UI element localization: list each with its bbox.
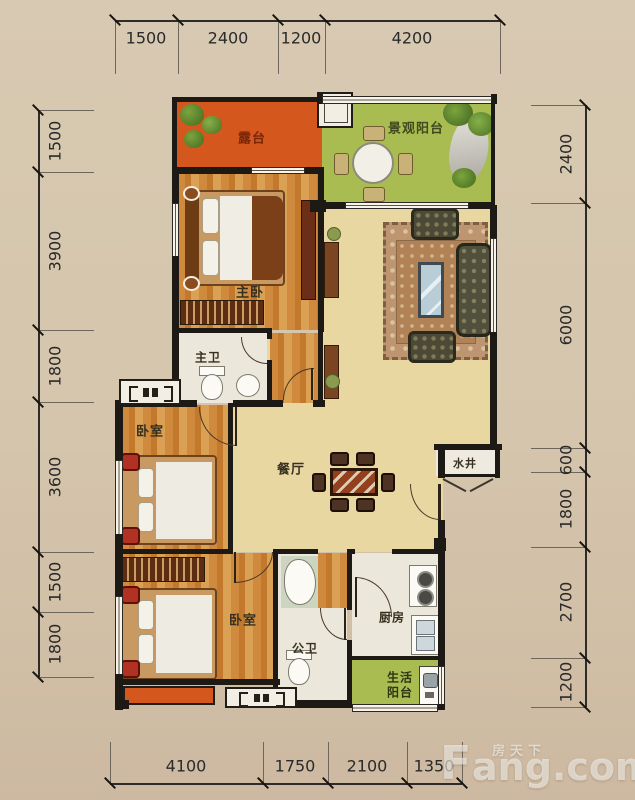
wall bbox=[115, 400, 123, 462]
wall bbox=[273, 549, 318, 554]
extension-line bbox=[40, 402, 94, 403]
pillow-icon bbox=[138, 600, 154, 630]
bracket-glyph bbox=[129, 386, 138, 402]
wall bbox=[172, 97, 322, 102]
extension-line bbox=[40, 552, 94, 553]
dimension-line-top bbox=[115, 20, 501, 22]
washer-drum bbox=[423, 673, 438, 688]
room-label-bedroom-bottom: 卧室 bbox=[229, 610, 257, 629]
chair-icon bbox=[330, 452, 349, 466]
wall bbox=[172, 97, 177, 172]
door-leaf bbox=[235, 407, 237, 446]
room-label-bedroom-mid: 卧室 bbox=[136, 421, 164, 440]
dim-label-left: 1800 bbox=[46, 346, 65, 387]
chair-icon bbox=[363, 126, 385, 141]
plant-icon bbox=[452, 168, 476, 188]
stove-icon bbox=[409, 565, 437, 607]
wall bbox=[440, 474, 498, 477]
pane-glyph bbox=[143, 388, 149, 397]
hall-cabinet bbox=[324, 242, 339, 298]
dim-label-right: 600 bbox=[557, 445, 576, 476]
room-label-public-bath: 公卫 bbox=[292, 640, 318, 657]
pillow-icon bbox=[202, 198, 219, 234]
entry-door-leaf bbox=[438, 484, 441, 520]
dim-label-left: 1800 bbox=[46, 624, 65, 665]
window bbox=[172, 203, 179, 258]
chair-icon bbox=[356, 452, 375, 466]
bathtub-icon bbox=[284, 559, 316, 605]
tv-cabinet bbox=[301, 200, 316, 300]
well-door-swing bbox=[470, 478, 494, 492]
dim-label-bottom: 4100 bbox=[166, 757, 207, 776]
bedpost-icon bbox=[121, 453, 140, 471]
toilet-icon bbox=[288, 658, 310, 685]
wall bbox=[273, 549, 278, 708]
dim-label-right: 1200 bbox=[557, 662, 576, 703]
armchair-icon bbox=[408, 331, 456, 363]
wall bbox=[490, 205, 497, 240]
extension-line bbox=[531, 547, 585, 548]
pane-glyph bbox=[152, 388, 158, 397]
room-label-kitchen: 厨房 bbox=[379, 609, 405, 626]
window bbox=[115, 596, 123, 676]
wardrobe-icon bbox=[180, 300, 264, 325]
room-label-life-balcony-line2: 阳台 bbox=[387, 684, 413, 701]
sofa-icon bbox=[456, 243, 492, 337]
bedpost-icon bbox=[121, 586, 140, 604]
bracket-glyph bbox=[239, 692, 248, 707]
extension-line bbox=[407, 742, 408, 783]
wall bbox=[352, 656, 440, 660]
chair-icon bbox=[334, 153, 349, 175]
window bbox=[352, 704, 438, 712]
bracket-glyph bbox=[276, 692, 285, 707]
bedpost-icon bbox=[121, 660, 140, 678]
hall-cabinet bbox=[324, 345, 339, 399]
wall bbox=[347, 640, 352, 708]
ac-platform-icon bbox=[119, 379, 181, 405]
wall bbox=[495, 448, 500, 478]
dim-label-bottom: 2100 bbox=[347, 757, 388, 776]
column bbox=[115, 700, 129, 709]
dim-label-left: 3900 bbox=[46, 231, 65, 272]
window bbox=[251, 167, 305, 174]
door-leaf bbox=[344, 608, 346, 640]
bedpost-icon bbox=[121, 527, 140, 545]
room-label-master-bath: 主卫 bbox=[195, 349, 221, 366]
dimension-line-left bbox=[38, 110, 40, 677]
extension-line bbox=[500, 22, 501, 74]
wall bbox=[318, 330, 323, 405]
bracket-glyph bbox=[164, 386, 173, 402]
extension-line bbox=[40, 110, 94, 111]
door-leaf bbox=[355, 577, 357, 617]
wall bbox=[347, 549, 352, 610]
extension-line bbox=[40, 612, 94, 613]
sink-basin bbox=[416, 636, 435, 651]
wall bbox=[491, 101, 495, 205]
wall bbox=[490, 332, 497, 450]
extension-line bbox=[178, 22, 179, 74]
pillow-icon bbox=[202, 240, 219, 276]
column bbox=[434, 538, 446, 551]
bath-vestibule-floor bbox=[318, 553, 347, 608]
window bbox=[115, 460, 123, 536]
chair-icon bbox=[330, 498, 349, 512]
dim-label-top: 2400 bbox=[208, 29, 249, 48]
watermark-cn: 房天下 bbox=[492, 740, 546, 759]
extension-line bbox=[40, 330, 94, 331]
wall bbox=[267, 360, 272, 403]
mattress bbox=[156, 462, 212, 539]
pane-glyph bbox=[254, 694, 260, 702]
floor-plan-page: 露台 景观阳台 主卧 主卫 卧室 餐厅 水井 卧室 公卫 厨房 生活 阳台 15… bbox=[0, 0, 635, 800]
room-label-master-bedroom: 主卧 bbox=[236, 282, 264, 301]
wall bbox=[233, 400, 283, 407]
dim-label-top: 4200 bbox=[392, 29, 433, 48]
pillow-icon bbox=[138, 634, 154, 664]
pane-glyph bbox=[263, 694, 269, 702]
chair-icon bbox=[363, 187, 385, 202]
toilet-icon bbox=[201, 374, 223, 400]
chair-icon bbox=[356, 498, 375, 512]
plant-icon bbox=[325, 374, 340, 389]
extension-line bbox=[278, 22, 279, 74]
wall bbox=[172, 170, 179, 205]
burner-icon bbox=[417, 589, 434, 606]
nightstand-icon bbox=[183, 186, 200, 201]
plant-icon bbox=[202, 116, 222, 134]
wall bbox=[115, 549, 233, 554]
extension-line bbox=[531, 105, 585, 106]
wall bbox=[174, 328, 272, 333]
extension-line bbox=[263, 742, 264, 783]
washer-knob bbox=[425, 692, 434, 698]
extension-line bbox=[531, 203, 585, 204]
extension-line bbox=[325, 22, 326, 74]
window bbox=[322, 96, 492, 104]
dim-label-right: 1800 bbox=[557, 489, 576, 530]
room-label-view-balcony: 景观阳台 bbox=[388, 118, 444, 137]
coffee-table-icon bbox=[418, 262, 444, 318]
wall bbox=[115, 679, 280, 685]
wall bbox=[438, 704, 445, 710]
wall bbox=[438, 448, 445, 478]
wall bbox=[318, 170, 324, 332]
dim-label-left: 3600 bbox=[46, 457, 65, 498]
armchair-icon bbox=[411, 208, 459, 240]
plant-icon bbox=[180, 104, 204, 126]
mattress bbox=[156, 595, 212, 673]
plant-icon bbox=[327, 227, 341, 241]
pillow-icon bbox=[138, 502, 154, 532]
chair-icon bbox=[398, 153, 413, 175]
well-door-swing bbox=[443, 478, 467, 492]
extension-line bbox=[115, 22, 116, 74]
bed-headboard bbox=[185, 190, 199, 286]
dim-label-right: 2700 bbox=[557, 582, 576, 623]
door-leaf bbox=[234, 552, 236, 583]
wall bbox=[115, 534, 123, 598]
door-leaf bbox=[311, 368, 313, 400]
nightstand-icon bbox=[183, 276, 200, 291]
window bbox=[490, 238, 497, 334]
plant-icon bbox=[184, 130, 204, 148]
basin-icon bbox=[236, 374, 260, 397]
wardrobe-icon bbox=[121, 557, 205, 582]
bay-window-orange bbox=[123, 686, 215, 705]
dim-label-left: 1500 bbox=[46, 562, 65, 603]
chair-icon bbox=[312, 473, 326, 492]
dim-label-bottom: 1750 bbox=[275, 757, 316, 776]
extension-line bbox=[531, 707, 585, 708]
dining-table-icon bbox=[330, 468, 378, 496]
window bbox=[438, 666, 445, 706]
extension-line bbox=[110, 742, 111, 783]
chair-icon bbox=[381, 473, 395, 492]
watermark-fang-f: F bbox=[440, 740, 471, 786]
room-label-terrace: 露台 bbox=[238, 128, 266, 147]
room-label-dining: 餐厅 bbox=[277, 459, 305, 478]
round-table-icon bbox=[352, 142, 394, 184]
window bbox=[345, 202, 469, 209]
wall bbox=[267, 333, 272, 339]
dim-label-top: 1200 bbox=[281, 29, 322, 48]
dim-label-top: 1500 bbox=[126, 29, 167, 48]
extension-line bbox=[40, 172, 94, 173]
dimension-line-right bbox=[585, 105, 587, 707]
pillow-icon bbox=[138, 468, 154, 498]
extension-line bbox=[328, 742, 329, 783]
dim-label-right: 6000 bbox=[557, 305, 576, 346]
kitchen-sink-icon bbox=[411, 615, 439, 655]
wall bbox=[174, 167, 253, 174]
quilt bbox=[252, 196, 283, 280]
burner-icon bbox=[417, 571, 434, 588]
dim-label-right: 2400 bbox=[557, 134, 576, 175]
ac-platform-icon bbox=[225, 687, 297, 708]
extension-line bbox=[531, 658, 585, 659]
room-label-water-well: 水井 bbox=[453, 455, 477, 471]
sink-basin bbox=[416, 620, 435, 635]
dim-label-left: 1500 bbox=[46, 121, 65, 162]
extension-line bbox=[40, 677, 94, 678]
